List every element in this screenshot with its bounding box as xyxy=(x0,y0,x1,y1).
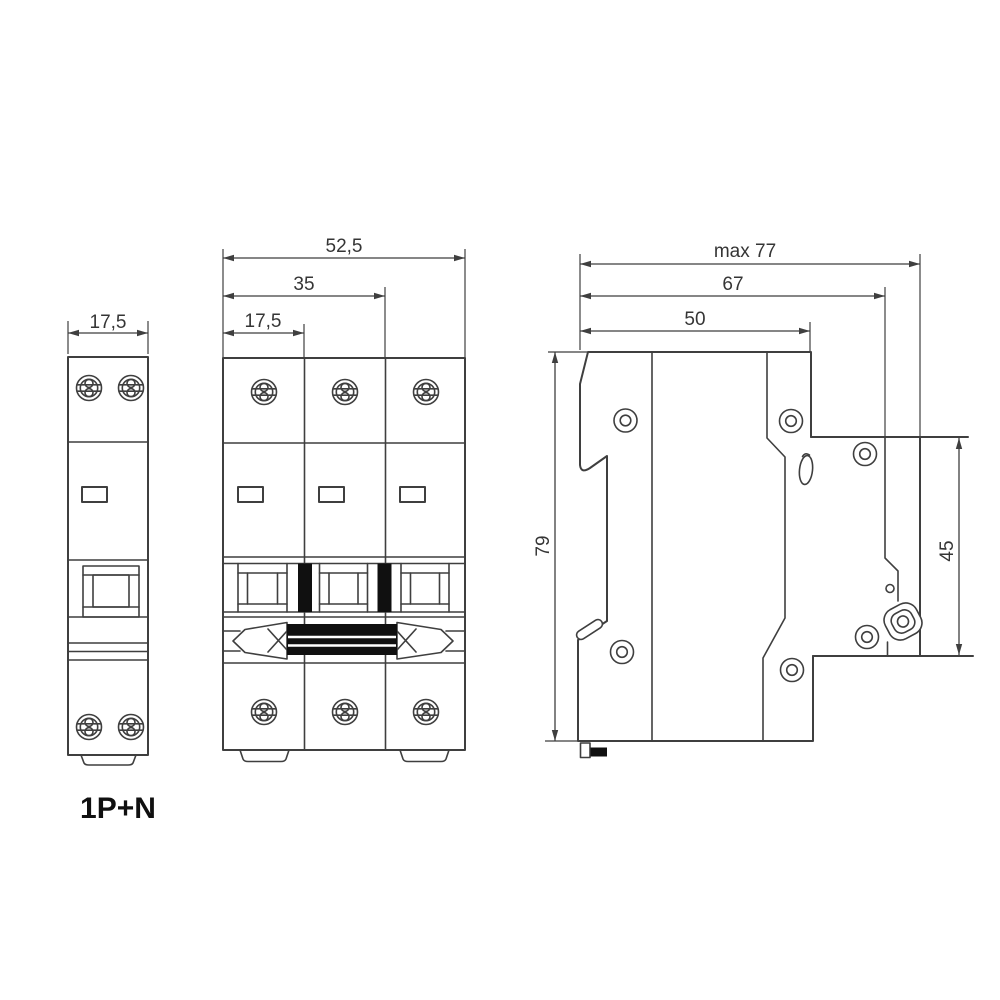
dim-label-max-depth: max 77 xyxy=(714,241,776,262)
handle-tie-bar xyxy=(223,623,465,660)
dim-label-1pn-width: 17,5 xyxy=(90,312,127,333)
side-oval-slot xyxy=(798,454,814,485)
din-rail-catch xyxy=(575,618,604,641)
side-inner-seam-right xyxy=(885,437,898,601)
toggle-separator xyxy=(378,564,392,613)
side-inner-seam-mid xyxy=(763,352,785,741)
dimension-3p-one-module: 17,5 xyxy=(223,311,304,358)
3p-bottom-tab xyxy=(240,750,289,762)
1pn-toggle-switch xyxy=(83,566,139,617)
dimension-side-max-depth: max 77 xyxy=(580,241,920,437)
dim-label-79: 79 xyxy=(533,535,554,556)
dim-label-3p-two: 35 xyxy=(293,274,314,295)
3p-body-outline xyxy=(223,358,465,750)
toggle-separator xyxy=(298,564,312,613)
dim-label-67: 67 xyxy=(722,274,743,295)
dim-label-3p-overall: 52,5 xyxy=(326,236,363,257)
dimension-1pn-width: 17,5 xyxy=(68,312,148,354)
3p-label-window xyxy=(319,487,344,502)
dimension-side-67: 67 xyxy=(580,274,885,437)
technical-drawing-page: 17,5 1P+N 5 xyxy=(0,0,1000,1000)
front-view-3p: 52,5 35 17,5 xyxy=(223,236,465,762)
1pn-body-outline xyxy=(68,357,148,755)
side-pin-hole xyxy=(886,585,894,593)
din-clip-tab-dark xyxy=(591,748,608,757)
dim-label-50: 50 xyxy=(684,309,705,330)
1pn-bottom-tab xyxy=(81,755,136,765)
3p-label-window xyxy=(400,487,425,502)
product-type-label: 1P+N xyxy=(80,792,156,825)
front-view-1pn: 17,5 1P+N xyxy=(68,312,156,825)
3p-label-window xyxy=(238,487,263,502)
1pn-label-window xyxy=(82,487,107,502)
dim-label-45: 45 xyxy=(937,540,958,561)
3p-bottom-tab xyxy=(400,750,449,762)
side-view: max 77 67 50 79 xyxy=(533,241,973,758)
dim-label-3p-one: 17,5 xyxy=(245,311,282,332)
dimension-side-50: 50 xyxy=(580,309,810,352)
3p-toggle-switch-1 xyxy=(238,564,287,613)
din-clip-tab xyxy=(581,743,591,758)
3p-toggle-switch-3 xyxy=(401,564,449,613)
dimension-3p-overall: 52,5 xyxy=(223,236,465,358)
tie-bar-center xyxy=(287,624,397,655)
dimension-side-45: 45 xyxy=(937,438,959,655)
breaker-dimension-drawing: 17,5 1P+N 5 xyxy=(0,0,1000,1000)
3p-toggle-switch-2 xyxy=(320,564,368,613)
